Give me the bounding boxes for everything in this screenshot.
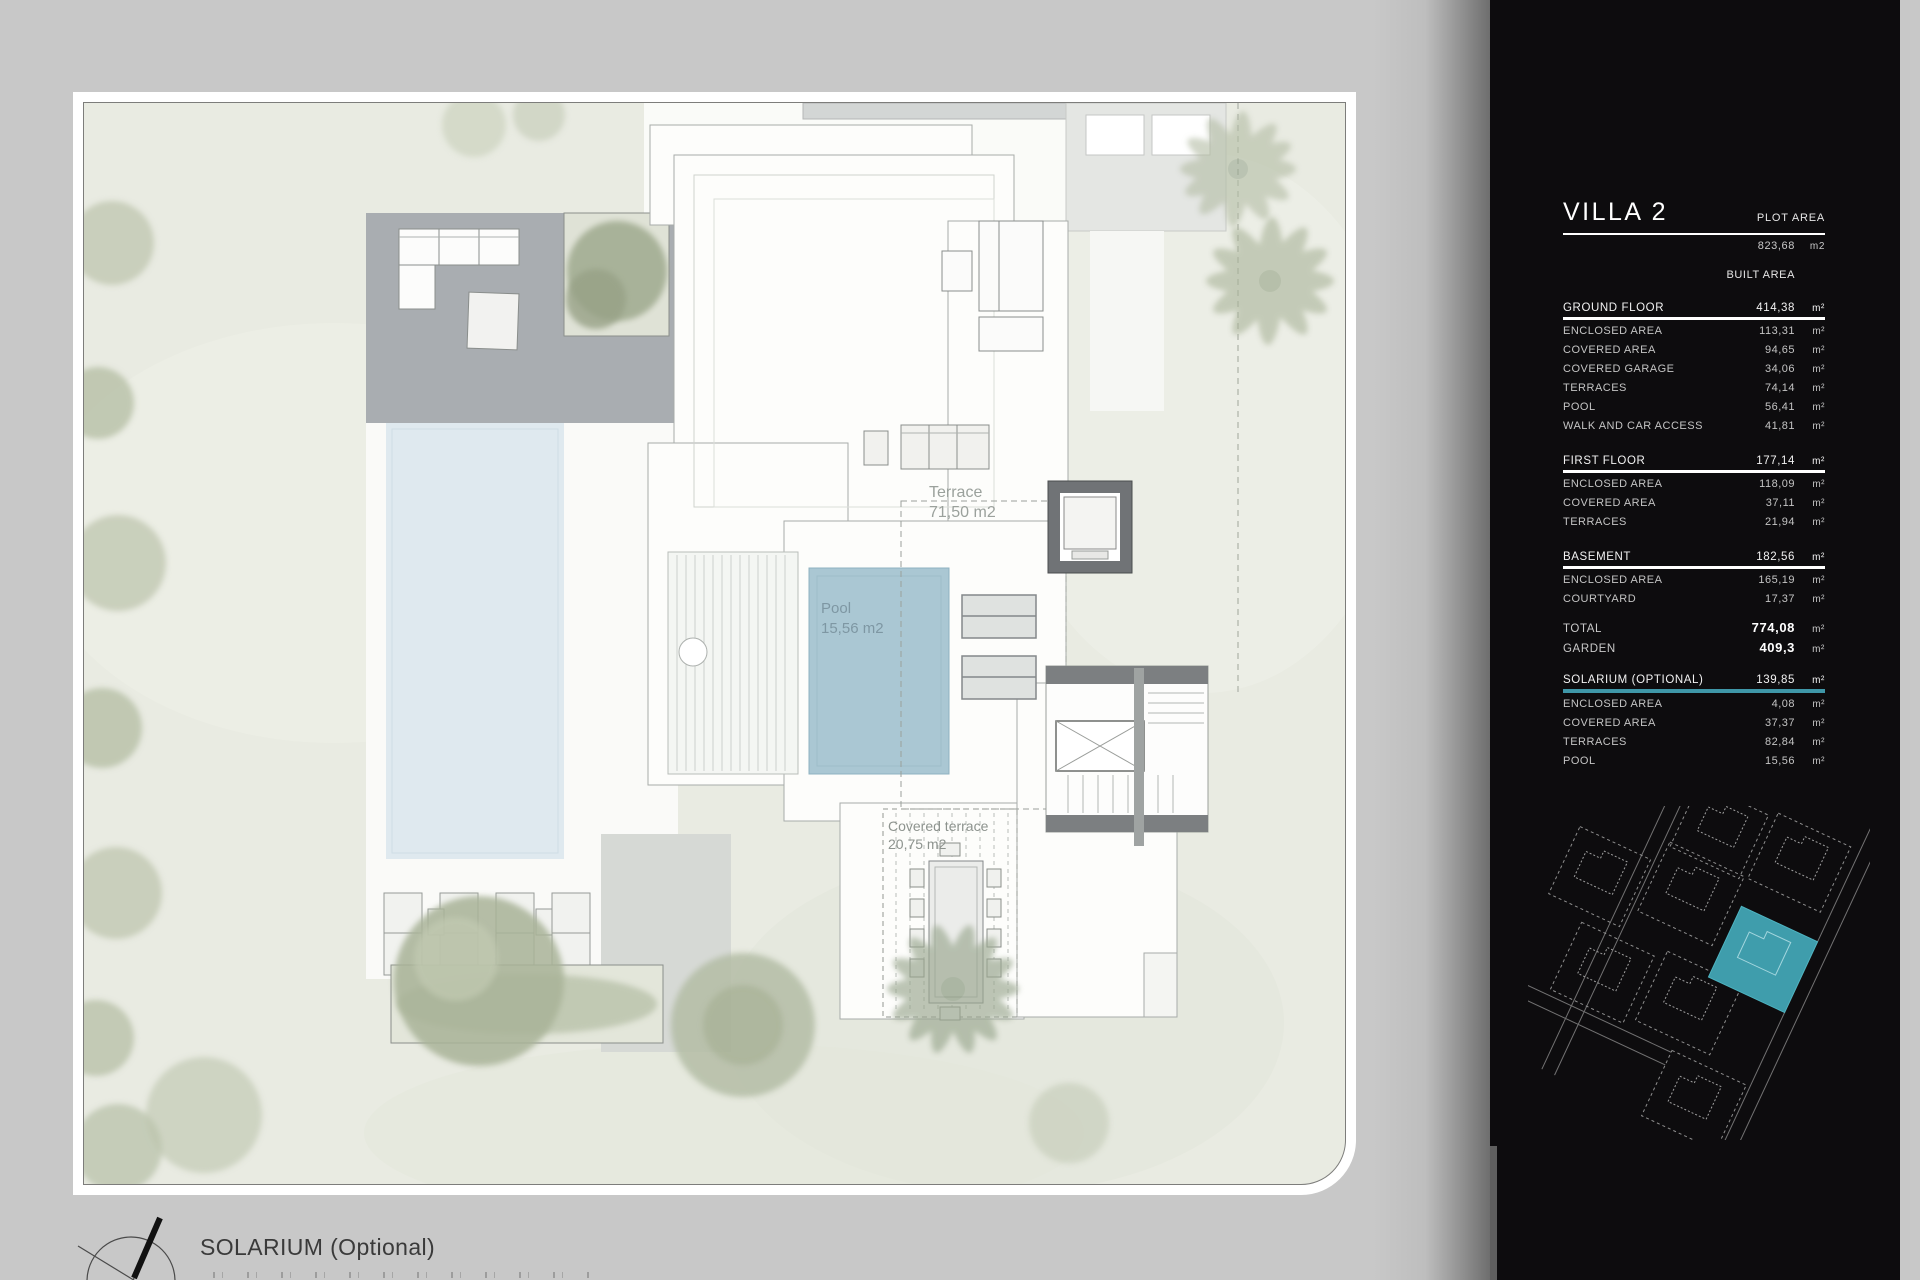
garden-label: GARDEN xyxy=(1563,643,1731,655)
panel-shadow xyxy=(1372,0,1490,1280)
pool-label-line2: 15,56 m2 xyxy=(821,620,884,637)
total-label: TOTAL xyxy=(1563,623,1731,635)
plan-caption: SOLARIUM (Optional) xyxy=(200,1234,435,1261)
area-value: 17,37 xyxy=(1731,593,1795,605)
section-header: GROUND FLOOR 414,38 m² xyxy=(1563,302,1825,320)
area-row: TERRACES82,84m² xyxy=(1563,736,1825,755)
covered-terrace-label-line2: 20,75 m2 xyxy=(888,836,947,852)
villa-title: VILLA 2 xyxy=(1563,198,1668,227)
section-header-unit: m² xyxy=(1795,552,1825,563)
garden-value: 409,3 xyxy=(1731,640,1795,655)
clipped-caption-line xyxy=(204,1272,596,1278)
terrace-planter xyxy=(564,213,669,336)
section-solarium: SOLARIUM (OPTIONAL) 139,85 m² ENCLOSED A… xyxy=(1563,674,1825,774)
terrace-couch xyxy=(864,425,989,469)
area-value: 21,94 xyxy=(1731,516,1795,528)
total-row: TOTAL774,08m² xyxy=(1563,620,1825,640)
area-value: 4,08 xyxy=(1731,698,1795,710)
site-location-map xyxy=(1528,806,1870,1140)
area-label: COVERED AREA xyxy=(1563,717,1731,729)
area-value: 41,81 xyxy=(1731,420,1795,432)
stairwell xyxy=(1046,666,1208,846)
section-header-value: 414,38 xyxy=(1731,302,1795,314)
area-row: COVERED AREA37,11m² xyxy=(1563,497,1825,516)
section-header-value: 182,56 xyxy=(1731,551,1795,563)
area-row: POOL56,41m² xyxy=(1563,401,1825,420)
section-header-unit: m² xyxy=(1795,675,1825,686)
compass-icon xyxy=(74,1216,190,1280)
area-value: 37,11 xyxy=(1731,497,1795,509)
totals-block: TOTAL774,08m² GARDEN409,3m² xyxy=(1563,620,1825,660)
built-area-label: BUILT AREA xyxy=(1726,269,1795,281)
plot-area-row: 823,68 m2 xyxy=(1563,240,1825,259)
pool-label-line1: Pool xyxy=(821,600,851,617)
area-row: ENCLOSED AREA113,31m² xyxy=(1563,325,1825,344)
panel-edge-notch xyxy=(1490,1146,1497,1280)
area-row: TERRACES74,14m² xyxy=(1563,382,1825,401)
area-unit: m² xyxy=(1795,479,1825,490)
area-label: COVERED GARAGE xyxy=(1563,363,1731,375)
area-unit: m² xyxy=(1795,699,1825,710)
area-label: COVERED AREA xyxy=(1563,344,1731,356)
area-value: 74,14 xyxy=(1731,382,1795,394)
area-row: COVERED GARAGE34,06m² xyxy=(1563,363,1825,382)
area-summary-panel: VILLA 2 PLOT AREA 823,68 m2 BUILT AREA G… xyxy=(1490,0,1900,1280)
section-header: FIRST FLOOR 177,14 m² xyxy=(1563,455,1825,473)
area-row: ENCLOSED AREA4,08m² xyxy=(1563,698,1825,717)
built-area-row: BUILT AREA xyxy=(1563,269,1825,288)
section-header-unit: m² xyxy=(1795,456,1825,467)
section-ground-floor: GROUND FLOOR 414,38 m² ENCLOSED AREA113,… xyxy=(1563,302,1825,439)
plot-area-value: 823,68 xyxy=(1758,240,1795,252)
area-label: WALK AND CAR ACCESS xyxy=(1563,420,1731,432)
area-row: ENCLOSED AREA165,19m² xyxy=(1563,574,1825,593)
area-row: POOL15,56m² xyxy=(1563,755,1825,774)
section-header-unit: m² xyxy=(1795,303,1825,314)
area-unit: m² xyxy=(1795,517,1825,528)
section-header-label: FIRST FLOOR xyxy=(1563,455,1731,467)
section-header-value: 139,85 xyxy=(1731,674,1795,686)
area-row: WALK AND CAR ACCESS41,81m² xyxy=(1563,420,1825,439)
area-unit: m² xyxy=(1795,756,1825,767)
plot-area-label: PLOT AREA xyxy=(1757,212,1825,227)
area-unit: m² xyxy=(1795,718,1825,729)
area-label: TERRACES xyxy=(1563,516,1731,528)
area-row: ENCLOSED AREA118,09m² xyxy=(1563,478,1825,497)
total-value: 774,08 xyxy=(1731,620,1795,635)
outdoor-table xyxy=(467,292,519,350)
area-label: POOL xyxy=(1563,755,1731,767)
side-step xyxy=(1144,953,1177,1017)
area-value: 37,37 xyxy=(1731,717,1795,729)
area-value: 34,06 xyxy=(1731,363,1795,375)
area-label: COURTYARD xyxy=(1563,593,1731,605)
area-row: COVERED AREA94,65m² xyxy=(1563,344,1825,363)
section-basement: BASEMENT 182,56 m² ENCLOSED AREA165,19m²… xyxy=(1563,551,1825,612)
area-label: TERRACES xyxy=(1563,382,1731,394)
area-value: 94,65 xyxy=(1731,344,1795,356)
area-row: COURTYARD17,37m² xyxy=(1563,593,1825,612)
site-plan-svg: Terrace 71,50 m2 xyxy=(84,103,1345,1184)
area-label: ENCLOSED AREA xyxy=(1563,478,1731,490)
area-value: 113,31 xyxy=(1731,325,1795,337)
area-label: ENCLOSED AREA xyxy=(1563,325,1731,337)
area-value: 15,56 xyxy=(1731,755,1795,767)
section-header-label: GROUND FLOOR xyxy=(1563,302,1731,314)
section-first-floor: FIRST FLOOR 177,14 m² ENCLOSED AREA118,0… xyxy=(1563,455,1825,535)
site-plan-drawing: Terrace 71,50 m2 xyxy=(83,102,1346,1185)
area-unit: m² xyxy=(1795,737,1825,748)
elevator-shaft xyxy=(1048,481,1132,573)
section-header-label: SOLARIUM (OPTIONAL) xyxy=(1563,674,1731,686)
area-value: 82,84 xyxy=(1731,736,1795,748)
panel-header: VILLA 2 PLOT AREA xyxy=(1563,198,1825,235)
area-value: 118,09 xyxy=(1731,478,1795,490)
section-header-label: BASEMENT xyxy=(1563,551,1731,563)
area-unit: m² xyxy=(1795,575,1825,586)
garden-unit: m² xyxy=(1795,644,1825,655)
terrace-label-line2: 71,50 m2 xyxy=(929,504,996,521)
solarium-pool xyxy=(809,568,949,774)
plot-area-unit: m2 xyxy=(1795,241,1825,252)
covered-terrace-label-line1: Covered terrace xyxy=(888,818,989,834)
area-label: ENCLOSED AREA xyxy=(1563,698,1731,710)
area-label: COVERED AREA xyxy=(1563,497,1731,509)
area-unit: m² xyxy=(1795,402,1825,413)
area-unit: m² xyxy=(1795,345,1825,356)
area-label: TERRACES xyxy=(1563,736,1731,748)
area-value: 56,41 xyxy=(1731,401,1795,413)
section-header-value: 177,14 xyxy=(1731,455,1795,467)
section-header-solarium: SOLARIUM (OPTIONAL) 139,85 m² xyxy=(1563,674,1825,693)
garden-row: GARDEN409,3m² xyxy=(1563,640,1825,660)
area-row: COVERED AREA37,37m² xyxy=(1563,717,1825,736)
area-value: 165,19 xyxy=(1731,574,1795,586)
terrace-label-line1: Terrace xyxy=(929,484,982,501)
louvre-deck xyxy=(668,552,798,774)
area-unit: m² xyxy=(1795,498,1825,509)
area-unit: m² xyxy=(1795,383,1825,394)
area-row: TERRACES21,94m² xyxy=(1563,516,1825,535)
area-unit: m² xyxy=(1795,364,1825,375)
area-unit: m² xyxy=(1795,326,1825,337)
area-label: ENCLOSED AREA xyxy=(1563,574,1731,586)
section-header: BASEMENT 182,56 m² xyxy=(1563,551,1825,569)
area-unit: m² xyxy=(1795,421,1825,432)
area-label: POOL xyxy=(1563,401,1731,413)
area-unit: m² xyxy=(1795,594,1825,605)
total-unit: m² xyxy=(1795,624,1825,635)
plan-sheet: Terrace 71,50 m2 xyxy=(73,92,1356,1195)
highlighted-plot xyxy=(1708,906,1817,1012)
